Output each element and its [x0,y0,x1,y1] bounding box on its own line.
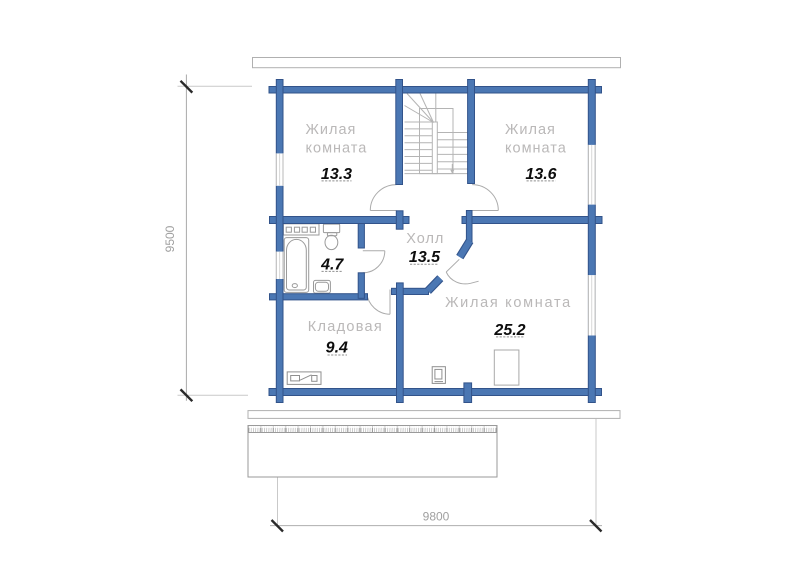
svg-text:Жилая комната: Жилая комната [445,295,572,311]
svg-text:13.5: 13.5 [409,249,441,266]
svg-text:9800: 9800 [423,510,450,524]
svg-text:9.4: 9.4 [326,339,348,356]
svg-text:комната: комната [505,141,567,157]
svg-text:13.6: 13.6 [525,166,556,183]
svg-text:Кладовая: Кладовая [308,319,383,335]
svg-text:Жилая: Жилая [505,122,556,138]
svg-text:комната: комната [306,141,368,157]
svg-text:9500: 9500 [163,225,177,252]
svg-text:Жилая: Жилая [306,122,357,138]
svg-text:13.3: 13.3 [321,166,352,183]
svg-text:Холл: Холл [406,231,444,247]
svg-text:25.2: 25.2 [493,322,525,339]
